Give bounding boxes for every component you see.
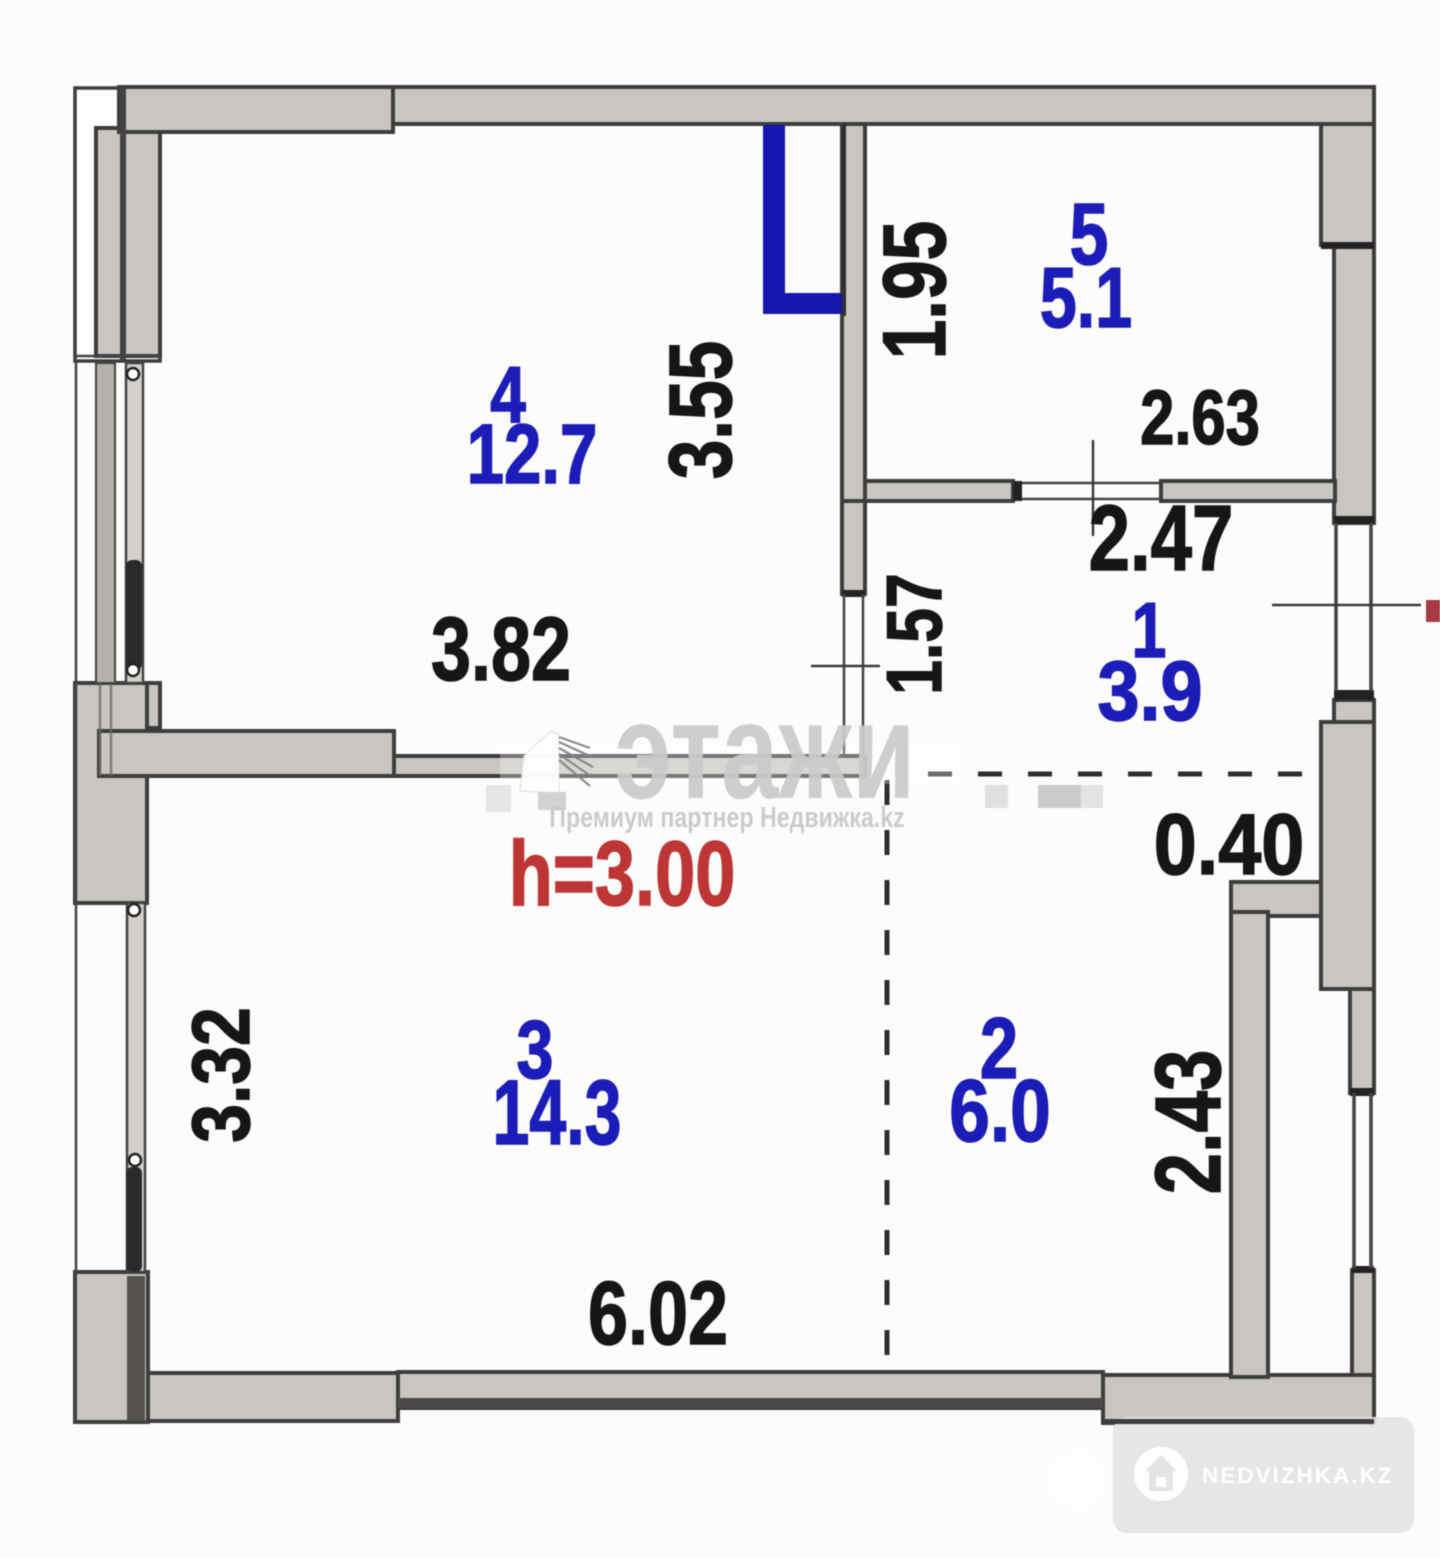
svg-text:2.43: 2.43 bbox=[1136, 1050, 1240, 1195]
svg-text:1.95: 1.95 bbox=[865, 221, 964, 360]
svg-text:Премиум партнер Недвижка.kz: Премиум партнер Недвижка.kz bbox=[549, 800, 904, 833]
svg-text:12.7: 12.7 bbox=[467, 408, 598, 502]
svg-text:2.63: 2.63 bbox=[1140, 374, 1260, 460]
svg-text:3.82: 3.82 bbox=[431, 599, 571, 699]
svg-text:3.55: 3.55 bbox=[651, 341, 750, 480]
svg-text:NEDVIZHKA.KZ: NEDVIZHKA.KZ bbox=[1202, 1463, 1394, 1488]
svg-text:2.47: 2.47 bbox=[1089, 486, 1234, 590]
svg-text:14.3: 14.3 bbox=[493, 1060, 622, 1163]
svg-text:h=3.00: h=3.00 bbox=[509, 823, 736, 925]
svg-text:3.32: 3.32 bbox=[176, 1007, 268, 1143]
svg-text:3.9: 3.9 bbox=[1097, 644, 1202, 738]
svg-text:6.02: 6.02 bbox=[588, 1263, 728, 1363]
svg-text:6.0: 6.0 bbox=[949, 1063, 1051, 1161]
svg-text:0.40: 0.40 bbox=[1154, 797, 1305, 893]
svg-text:5.1: 5.1 bbox=[1040, 251, 1132, 346]
